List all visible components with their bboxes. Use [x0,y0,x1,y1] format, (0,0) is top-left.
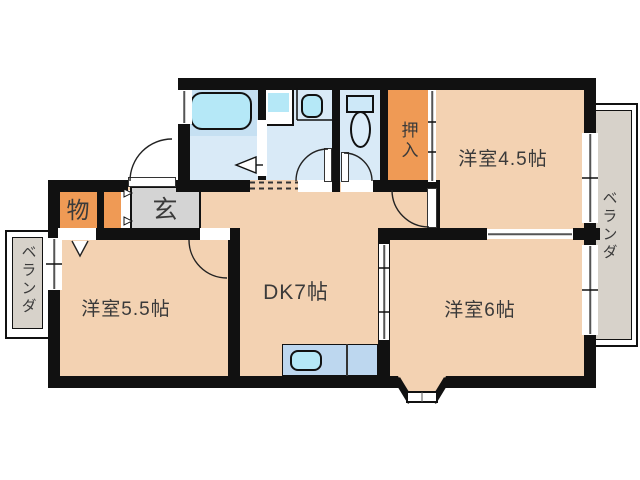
genkan-label: 玄 [130,186,201,230]
kitchen-sink [290,350,322,371]
bathtub [190,92,252,130]
shoe-cabinet-door [121,190,130,228]
wall-room45-south [378,228,487,240]
dk-label: DK7帖 [231,277,361,305]
partition-room45-room6 [487,229,573,239]
shoe-cabinet [104,190,121,228]
wall-storage-shoe [97,190,104,228]
wall-bottom [48,376,596,388]
toilet-door-leaf [341,152,349,182]
veranda-left-label: ベランダ [14,230,42,330]
opening-dashed [250,180,298,192]
toilet-bowl [350,111,371,148]
veranda-right-label: ベランダ [594,176,624,276]
wall-toilet-oshiire [380,90,388,182]
wall-room45-south-b [573,228,584,240]
opening-bath-door [257,120,267,176]
opening-room55-door [200,228,230,240]
room45-door-leaf [427,188,437,228]
opening-storage-door [58,228,96,240]
wash-basin [301,94,323,118]
wall-top [178,78,596,90]
wall-washroom-toilet [332,90,340,192]
dk-room6-sliding-door [379,244,389,340]
kitchen-counter-divider [346,344,348,376]
washing-machine-drum [268,93,289,112]
room6-label: 洋室6帖 [405,295,555,321]
window-bathroom [176,90,192,124]
washroom-door-leaf [324,148,332,182]
window-room55-left [46,238,62,290]
storage-label: 物 [60,189,97,227]
floor-plan: 洋室4.5帖 洋室5.5帖 洋室6帖 DK7帖 玄 物 押入 ベランダ ベランダ [0,0,640,480]
oshiire-label: 押入 [390,103,426,179]
entrance-door-arc [130,139,172,181]
room45-label: 洋室4.5帖 [428,144,578,170]
room55-label: 洋室5.5帖 [51,294,201,320]
